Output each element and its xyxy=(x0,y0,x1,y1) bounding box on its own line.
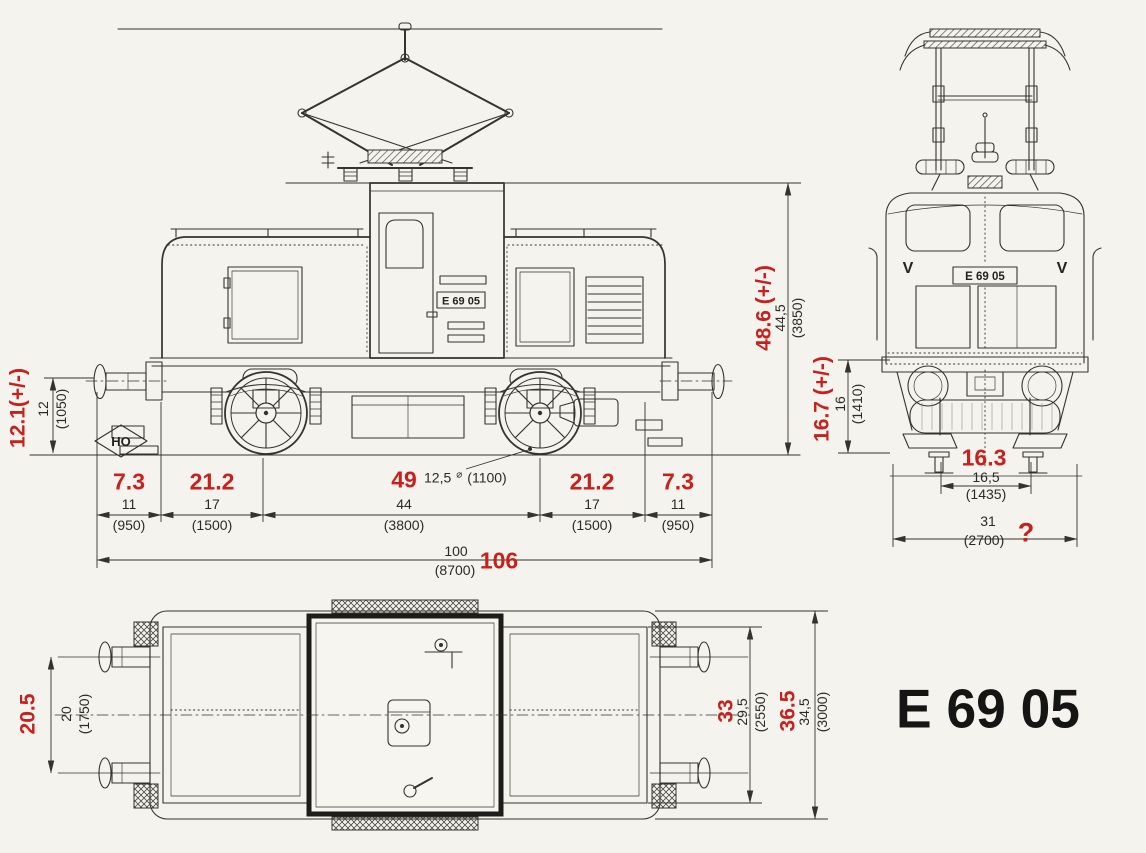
dim-seg1-annotation: 7.3 xyxy=(113,471,145,494)
loco-side-body: E 69 05 xyxy=(162,183,665,358)
buffers-side xyxy=(86,365,732,399)
ho-scale-logo: HO xyxy=(95,425,147,457)
dim-seg5-prototype: (950) xyxy=(662,518,695,532)
wheel-diameter-model: 12,5 xyxy=(424,471,451,485)
dim-seg5-model: 11 xyxy=(671,497,686,511)
dim-seg3-prototype: (3800) xyxy=(384,518,424,532)
pantograph-front xyxy=(900,29,1070,190)
dim-overall-length-model: 100 xyxy=(444,544,467,558)
dim-buffer-spacing-model: 20 xyxy=(59,706,73,722)
front-marking-v-right: V xyxy=(1057,260,1068,277)
dimensions-front-view xyxy=(838,360,1077,547)
dim-seg4-annotation: 21.2 xyxy=(570,471,615,494)
dim-seg2-prototype: (1500) xyxy=(192,518,232,532)
dim-front-buffer-height-prototype: (1410) xyxy=(850,384,864,424)
dim-buffer-spacing-prototype: (1750) xyxy=(77,694,91,734)
dim-seg5-annotation: 7.3 xyxy=(662,471,694,494)
pantograph-side xyxy=(286,23,520,183)
loco-front-body: E 69 05 V V xyxy=(869,193,1101,363)
dim-seg2-annotation: 21.2 xyxy=(190,471,235,494)
dim-wheel-diameter: 12,5 ⌀ (1100) xyxy=(424,471,507,486)
dim-gauge-annotation: 16.3 xyxy=(962,447,1007,470)
dim-plan-overall-width-model: 34,5 xyxy=(797,698,811,725)
dim-overall-length-annotation: 106 xyxy=(480,550,518,573)
dim-overall-length-prototype: (8700) xyxy=(435,563,475,577)
side-number-plate: E 69 05 xyxy=(442,296,480,308)
dim-buffer-height-prototype: (1050) xyxy=(54,389,68,429)
dim-width-prototype: (2700) xyxy=(964,533,1004,547)
dim-seg1-prototype: (950) xyxy=(113,518,146,532)
dim-buffer-height-model: 12 xyxy=(36,401,50,417)
dim-seg4-prototype: (1500) xyxy=(572,518,612,532)
technical-drawing-sheet: E 69 05 xyxy=(0,0,1146,853)
wheel-diameter-prototype: (1100) xyxy=(467,471,506,485)
dim-width-annotation: ? xyxy=(1018,520,1035,547)
dim-plan-overall-width-prototype: (3000) xyxy=(815,692,829,732)
dim-body-width-model: 29,5 xyxy=(735,698,749,725)
dim-seg4-model: 17 xyxy=(584,497,600,511)
dim-seg3-annotation: 49 xyxy=(391,469,417,492)
dim-seg2-model: 17 xyxy=(204,497,220,511)
dim-gauge-model: 16,5 xyxy=(972,470,999,484)
drawing-title: E 69 05 xyxy=(896,682,1080,737)
front-marking-v-left: V xyxy=(903,260,914,277)
dim-front-buffer-height-model: 16 xyxy=(833,396,847,412)
front-number-plate: E 69 05 xyxy=(965,271,1005,283)
dim-seg1-model: 11 xyxy=(122,497,137,511)
dim-width-model: 31 xyxy=(980,514,996,528)
frame-and-running-gear-side xyxy=(112,358,682,454)
dim-body-width-prototype: (2550) xyxy=(753,692,767,732)
diameter-symbol: ⌀ xyxy=(456,471,462,481)
dim-seg3-model: 44 xyxy=(396,497,412,511)
dim-overall-height-prototype: (3850) xyxy=(790,298,804,338)
dim-buffer-height-annotation: 12.1(+/-) xyxy=(8,368,29,448)
ho-logo-label: HO xyxy=(111,434,131,449)
dim-overall-height-model: 44,5 xyxy=(773,304,787,331)
dim-buffer-spacing-annotation: 20.5 xyxy=(18,694,39,735)
dim-front-buffer-height-annotation: 16.7 (+/-) xyxy=(812,356,833,442)
loco-plan-body xyxy=(55,600,750,830)
dim-gauge-prototype: (1435) xyxy=(966,487,1006,501)
